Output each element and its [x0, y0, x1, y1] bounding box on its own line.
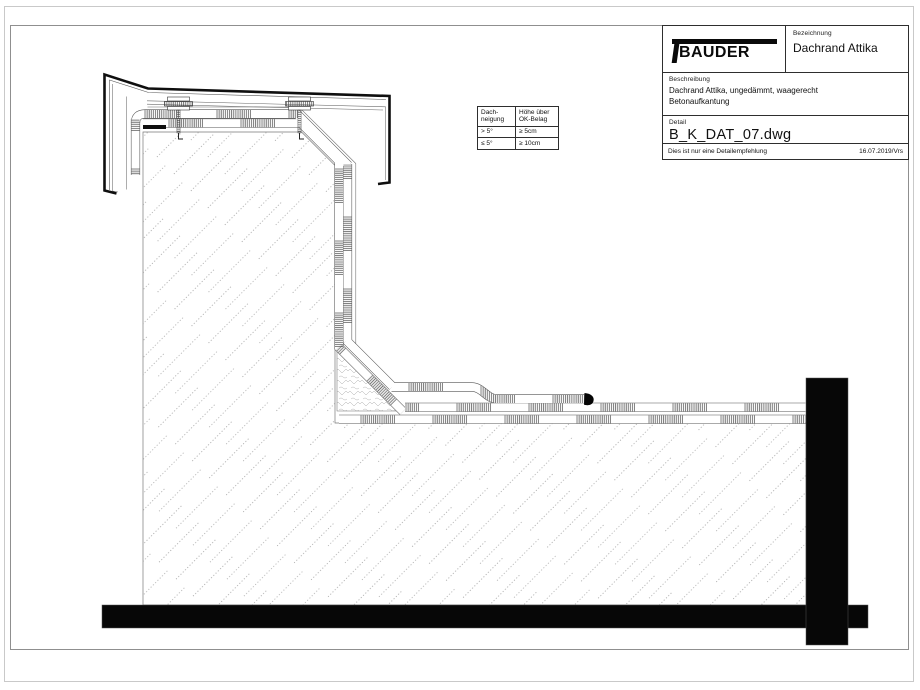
bezeichnung-cell: Bezeichnung Dachrand Attika	[786, 26, 908, 72]
slope-height-table: Dach- neigung Höhe über OK-Belag > 5° ≥ …	[477, 106, 559, 150]
membrane-edge-strip	[143, 125, 166, 129]
footer-date: 16.07.2019/Vrs	[859, 148, 903, 155]
footer-note: Dies ist nur eine Detailempfehlung	[668, 148, 767, 155]
table-header-row: Dach- neigung Höhe über OK-Belag	[478, 107, 559, 127]
table-row: ≤ 5° ≥ 10cm	[478, 138, 559, 150]
height-cell: ≥ 10cm	[516, 138, 559, 150]
height-cell: ≥ 5cm	[516, 126, 559, 138]
slope-cell: > 5°	[478, 126, 516, 138]
logo-left-bar	[672, 44, 679, 63]
detail-cell: Detail B_K_DAT_07.dwg	[663, 116, 908, 144]
beschreibung-label: Beschreibung	[669, 76, 902, 83]
header-line: Höhe über	[519, 109, 555, 117]
header-line: OK-Belag	[519, 116, 555, 124]
table-row: > 5° ≥ 5cm	[478, 126, 559, 138]
header-line: neigung	[481, 116, 512, 124]
logo-text: BAUDER	[679, 44, 750, 62]
header-hoehe: Höhe über OK-Belag	[516, 107, 559, 127]
beschreibung-line1: Dachrand Attika, ungedämmt, waagerecht	[669, 86, 902, 97]
header-line: Dach-	[481, 109, 512, 117]
beschreibung-cell: Beschreibung Dachrand Attika, ungedämmt,…	[663, 73, 908, 116]
beschreibung-line2: Betonaufkantung	[669, 97, 902, 108]
logo-cell: BAUDER	[663, 26, 786, 72]
bauder-logo: BAUDER	[672, 39, 777, 63]
bezeichnung-label: Bezeichnung	[793, 30, 901, 37]
drawing-sheet: Dach- neigung Höhe über OK-Belag > 5° ≥ …	[0, 0, 920, 690]
detail-filename: B_K_DAT_07.dwg	[669, 127, 902, 143]
detail-label: Detail	[669, 119, 902, 126]
membrane-end-bead	[584, 393, 594, 405]
header-dachneigung: Dach- neigung	[478, 107, 516, 127]
bezeichnung-value: Dachrand Attika	[793, 41, 901, 55]
slope-cell: ≤ 5°	[478, 138, 516, 150]
title-block-footer: Dies ist nur eine Detailempfehlung 16.07…	[663, 144, 908, 159]
title-block-row-logo: BAUDER Bezeichnung Dachrand Attika	[663, 26, 908, 73]
title-block: BAUDER Bezeichnung Dachrand Attika Besch…	[662, 25, 909, 160]
concrete-section	[143, 132, 806, 605]
